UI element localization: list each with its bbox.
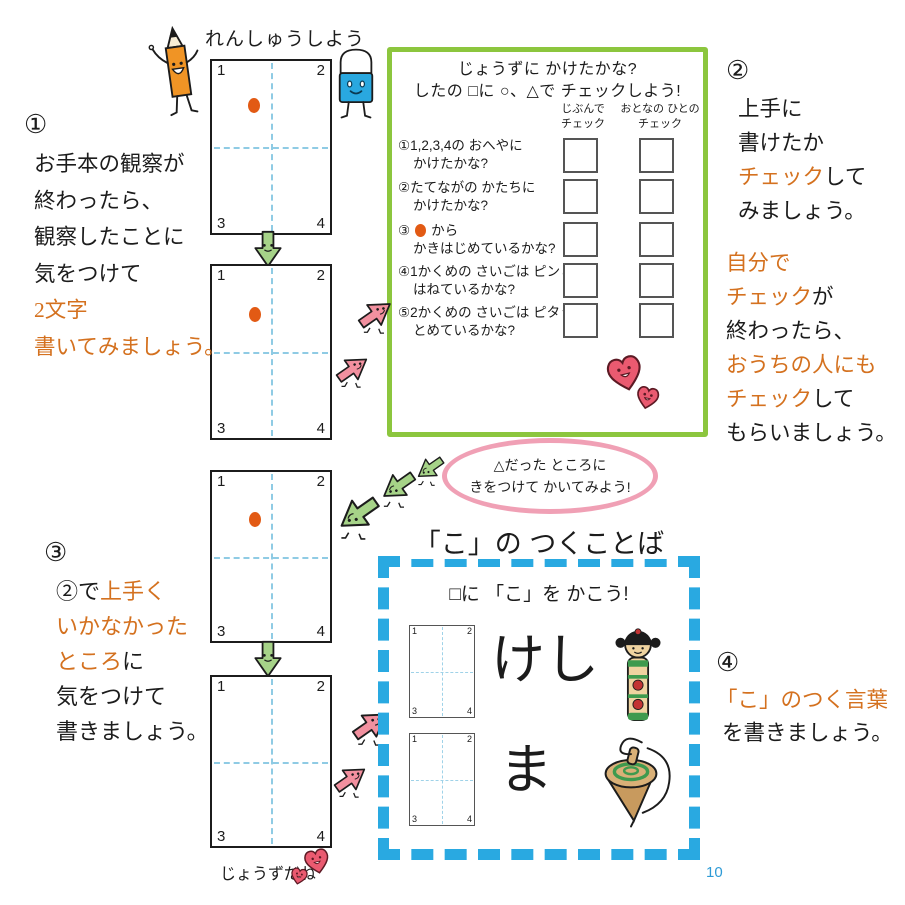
check-question-4: ④1かくめの さいごは ピンと はねているかな? <box>398 263 574 299</box>
start-dot-icon <box>249 512 261 527</box>
step4-instructions: ④ 「こ」のつく言葉 を書きましょう。 <box>716 648 893 750</box>
eraser-character-icon <box>333 46 379 122</box>
practice-box-3[interactable]: 1 2 3 4 <box>210 470 332 643</box>
guide-line <box>214 557 328 559</box>
word-text-2: ま <box>499 741 553 799</box>
page-number: 10 <box>706 864 723 881</box>
word-section-subtitle: □に 「こ」を かこう! <box>389 579 689 606</box>
adult-check-box-3[interactable] <box>639 222 674 257</box>
hint-line2: きをつけて かいてみよう! <box>447 476 653 498</box>
down-arrow-icon <box>252 640 284 678</box>
worksheet-page: れんしゅうしよう 1 2 <box>0 0 905 905</box>
down-arrow-icon <box>252 230 284 268</box>
corner-number: 2 <box>317 474 325 489</box>
adult-check-box-4[interactable] <box>639 263 674 298</box>
check-question-2: ②たてながの かたちに かけたかな? <box>398 179 535 215</box>
self-check-panel: じょうずに かけたかな? したの □に ○、△で チェックしよう! じぶんでチェ… <box>387 47 708 437</box>
heart-icon <box>287 864 311 888</box>
step1-number: ① <box>24 110 226 140</box>
corner-number: 2 <box>317 63 325 78</box>
self-check-box-5[interactable] <box>563 303 598 338</box>
adult-check-box-5[interactable] <box>639 303 674 338</box>
step3-number: ③ <box>44 538 209 568</box>
corner-number: 1 <box>217 63 225 78</box>
corner-number: 4 <box>317 829 325 844</box>
step3-instructions: ③ ②で上手く いかなかった ところに 気をつけて 書きましょう。 <box>44 538 209 749</box>
self-check-box-2[interactable] <box>563 179 598 214</box>
hint-bubble: △だった ところに きをつけて かいてみよう! <box>442 438 658 514</box>
column-header-self: じぶんでチェック <box>548 102 618 132</box>
self-check-box-3[interactable] <box>563 222 598 257</box>
adult-check-box-2[interactable] <box>639 179 674 214</box>
green-arrow-icon <box>376 466 418 508</box>
spinning-top-icon <box>587 733 675 829</box>
corner-number: 3 <box>217 624 225 639</box>
check-question-3: ③から かきはじめているかな? <box>398 222 556 258</box>
guide-line <box>214 352 328 354</box>
start-dot-icon <box>248 98 260 113</box>
corner-number: 4 <box>317 421 325 436</box>
pink-arrow-icon <box>332 758 372 798</box>
self-check-box-1[interactable] <box>563 138 598 173</box>
check-panel-subtitle: したの □に ○、△で チェックしよう! <box>392 77 703 101</box>
corner-number: 1 <box>217 474 225 489</box>
start-dot-icon <box>415 224 426 237</box>
step4-number: ④ <box>716 648 893 678</box>
practice-box-1[interactable]: 1 2 3 4 <box>210 59 332 235</box>
corner-number: 3 <box>217 421 225 436</box>
practice-box-4[interactable]: 1 2 3 4 <box>210 675 332 848</box>
green-arrow-icon <box>332 490 382 540</box>
corner-number: 3 <box>217 829 225 844</box>
corner-number: 1 <box>217 679 225 694</box>
corner-number: 4 <box>317 624 325 639</box>
kokeshi-doll-icon <box>615 623 661 727</box>
step2-instructions: ② 上手に 書けたか チェックして みましょう。 自分で チェックが 終わったら… <box>726 56 897 450</box>
corner-number: 2 <box>317 268 325 283</box>
start-dot-icon <box>249 307 261 322</box>
heart-icon <box>631 381 663 413</box>
word-write-box-2[interactable]: 1 2 3 4 <box>409 733 475 826</box>
word-text-1: けし <box>491 631 599 689</box>
step1-instructions: ① お手本の観察が 終わったら、 観察したことに 気をつけて 2文字 書いてみま… <box>24 110 226 365</box>
corner-number: 4 <box>317 216 325 231</box>
pink-arrow-icon <box>334 348 374 388</box>
word-write-box-1[interactable]: 1 2 3 4 <box>409 625 475 718</box>
guide-line <box>214 147 328 149</box>
self-check-box-4[interactable] <box>563 263 598 298</box>
word-section: □に 「こ」を かこう! 1 2 3 4 けし <box>378 556 700 860</box>
column-header-adult: おとなの ひとのチェック <box>610 102 710 132</box>
corner-number: 2 <box>317 679 325 694</box>
word-section-title: 「こ」の つくことば <box>378 522 700 561</box>
guide-line <box>214 762 328 764</box>
step2-number: ② <box>726 56 897 86</box>
adult-check-box-1[interactable] <box>639 138 674 173</box>
check-question-1: ①1,2,3,4の おへやに かけたかな? <box>398 137 523 173</box>
check-panel-title: じょうずに かけたかな? <box>392 55 703 79</box>
pink-arrow-icon <box>356 292 398 334</box>
check-question-5: ⑤2かくめの さいごは ピタッと とめているかな? <box>398 304 587 340</box>
hint-line1: △だった ところに <box>447 454 653 476</box>
practice-box-2[interactable]: 1 2 3 4 <box>210 264 332 440</box>
